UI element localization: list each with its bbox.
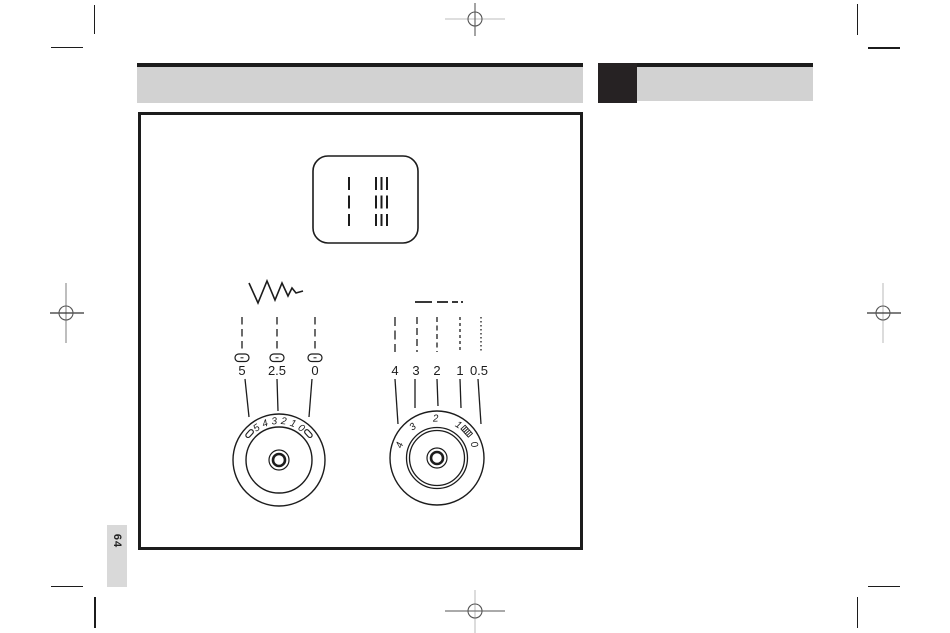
crop-mark-top-right-vertical (857, 4, 859, 35)
dial-diagram: 5 2.5 0 (138, 112, 583, 550)
crop-mark-top-right-horizontal (868, 47, 900, 49)
registration-mark-bottom-center (441, 577, 509, 633)
length-label-1: 1 (456, 363, 463, 378)
manual-page: 5 2.5 0 (0, 0, 950, 633)
diagram-box: 5 2.5 0 (138, 112, 583, 550)
stitch-width-group: 5 2.5 0 (233, 281, 325, 506)
header-bar-left (137, 63, 583, 103)
length-label-3: 3 (412, 363, 419, 378)
length-dial-number-3: 3 (407, 421, 419, 433)
crop-mark-top-left-vertical (94, 5, 96, 34)
header-section-black-block (598, 63, 637, 103)
registration-mark-top-center (441, 0, 509, 53)
needle-drop-markers (235, 354, 322, 362)
registration-mark-right-middle (849, 279, 917, 347)
width-label-5: 5 (238, 363, 245, 378)
crop-mark-bottom-right-horizontal (868, 586, 900, 588)
registration-mark-left-middle (32, 279, 100, 347)
stitch-length-dial (390, 411, 484, 505)
width-label-0: 0 (311, 363, 318, 378)
length-dial-number-4: 4 (394, 440, 406, 449)
header-bar-right (598, 63, 813, 103)
width-dial-number-3: 3 (271, 416, 278, 428)
length-label-4: 4 (391, 363, 398, 378)
width-dial-number-4: 4 (261, 418, 271, 430)
width-dial-number-1: 1 (288, 418, 297, 430)
stitch-width-guide-lines (242, 317, 315, 349)
stitch-length-group: 4 3 2 1 0.5 (390, 302, 488, 505)
header-bar-right-gray (637, 67, 813, 101)
length-label-0-5: 0.5 (470, 363, 488, 378)
crop-mark-bottom-left-horizontal (51, 586, 83, 588)
triple-straight-stitch-icon (376, 177, 387, 226)
width-dial-number-2: 2 (279, 416, 287, 428)
stitch-panel-outline (313, 156, 418, 243)
length-dial-number-2: 2 (432, 413, 439, 424)
stitch-width-pointer-lines (245, 379, 312, 417)
crop-mark-top-left-horizontal (51, 47, 83, 49)
page-number: 64 (111, 534, 123, 548)
stitch-width-dial (233, 414, 325, 506)
stitch-length-dial-numbers: 4 3 2 1 0 (394, 413, 480, 449)
zigzag-stitch-icon (249, 281, 303, 303)
length-dial-number-0: 0 (468, 440, 480, 449)
length-label-2: 2 (433, 363, 440, 378)
width-label-2-5: 2.5 (268, 363, 286, 378)
stitch-pattern-panel (313, 156, 418, 243)
crop-mark-bottom-left-vertical (94, 597, 96, 628)
dial-hub (269, 450, 289, 470)
stitch-width-scale-labels: 5 2.5 0 (238, 363, 318, 378)
buttonhole-mark (461, 425, 473, 437)
header-bar-left-gray (137, 67, 583, 103)
diagram-box-border (140, 114, 582, 549)
stitch-length-scale-labels: 4 3 2 1 0.5 (391, 363, 488, 378)
dial-hub (427, 448, 447, 468)
crop-mark-bottom-right-vertical (857, 597, 859, 628)
page-number-tab: 64 (107, 525, 127, 587)
stitch-length-guide-lines (395, 317, 481, 352)
